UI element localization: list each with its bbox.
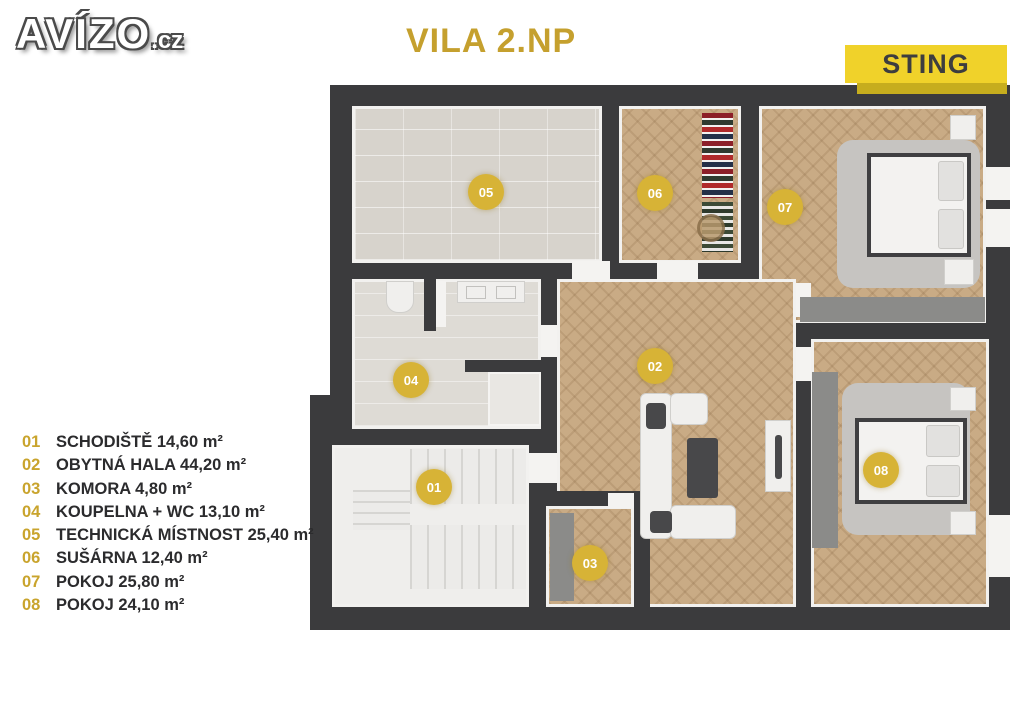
avizo-logo-suffix: .cz	[151, 27, 183, 54]
stair-corner-steps	[353, 490, 410, 530]
room-badge-03: 03	[572, 545, 608, 581]
legend-label: POKOJ 25,80 m²	[56, 573, 184, 592]
bed-room-07	[867, 153, 971, 257]
shelf-komora	[550, 513, 574, 601]
sink	[466, 286, 486, 299]
room-badge-01: 01	[416, 469, 452, 505]
door-hall-to-komora	[608, 493, 634, 508]
legend-label: KOMORA 4,80 m²	[56, 480, 192, 499]
legend-number: 06	[22, 549, 56, 568]
nightstand	[950, 387, 976, 411]
window-room-08	[989, 515, 1010, 577]
pillow	[938, 209, 964, 249]
door-hall-to-room-08	[796, 347, 811, 381]
dresser-room-07	[800, 297, 985, 322]
legend-number: 05	[22, 526, 56, 545]
coffee-table	[687, 438, 718, 498]
legend-row: 03 KOMORA 4,80 m²	[22, 480, 314, 503]
pillow	[926, 425, 960, 457]
wardrobe-room-08	[812, 372, 838, 548]
legend-number: 04	[22, 503, 56, 522]
door-bath-to-hall	[541, 325, 557, 357]
vanity-double-sink	[457, 281, 525, 303]
sideboard-decor	[775, 435, 782, 479]
nightstand	[944, 259, 974, 285]
floorplan: 01 02 03 04 05 06 07 08	[310, 85, 1010, 630]
legend-label: OBYTNÁ HALA 44,20 m²	[56, 456, 246, 475]
sofa-top-arm	[670, 393, 708, 425]
sting-badge-shadow-strip	[857, 83, 1007, 94]
legend-row: 06 SUŠÁRNA 12,40 m²	[22, 549, 314, 572]
legend-row: 01 SCHODIŠTĚ 14,60 m²	[22, 433, 314, 456]
legend-row: 08 POKOJ 24,10 m²	[22, 596, 314, 619]
legend-label: POKOJ 24,10 m²	[56, 596, 184, 615]
window-room-07-mullion	[986, 200, 1010, 209]
page-title: VILA 2.NP	[406, 22, 576, 61]
bath-partition	[424, 279, 436, 331]
legend-number: 08	[22, 596, 56, 615]
legend-number: 01	[22, 433, 56, 452]
shower	[488, 372, 541, 426]
clothes-rack	[702, 113, 733, 198]
legend-row: 05 TECHNICKÁ MÍSTNOST 25,40 m²	[22, 526, 314, 549]
legend-row: 07 POKOJ 25,80 m²	[22, 573, 314, 596]
sofa-cushion	[646, 403, 666, 429]
legend-number: 03	[22, 480, 56, 499]
room-badge-05: 05	[468, 174, 504, 210]
sink	[496, 286, 516, 299]
door-hall-north-a	[572, 261, 610, 280]
room-badge-04: 04	[393, 362, 429, 398]
nightstand	[950, 511, 976, 535]
sofa-bottom-arm	[670, 505, 736, 539]
avizo-logo: AVÍZO.cz	[16, 10, 183, 58]
door-hall-to-stairs	[529, 453, 557, 483]
room-legend: 01 SCHODIŠTĚ 14,60 m² 02 OBYTNÁ HALA 44,…	[22, 433, 314, 619]
avizo-logo-main: AVÍZO	[16, 10, 151, 57]
legend-label: SCHODIŠTĚ 14,60 m²	[56, 433, 223, 452]
legend-label: TECHNICKÁ MÍSTNOST 25,40 m²	[56, 526, 314, 545]
legend-label: KOUPELNA + WC 13,10 m²	[56, 503, 265, 522]
fan-decor	[697, 214, 725, 242]
legend-label: SUŠÁRNA 12,40 m²	[56, 549, 208, 568]
room-badge-02: 02	[637, 348, 673, 384]
legend-number: 02	[22, 456, 56, 475]
legend-number: 07	[22, 573, 56, 592]
bath-door-leaf	[436, 281, 446, 327]
pillow	[926, 465, 960, 497]
pillow	[938, 161, 964, 201]
sideboard-hall	[765, 420, 791, 492]
toilet	[386, 281, 414, 313]
stair-flight-lower	[410, 525, 526, 589]
shower-wall	[465, 360, 541, 372]
room-badge-06: 06	[637, 175, 673, 211]
sofa-cushion	[650, 511, 672, 533]
room-badge-08: 08	[863, 452, 899, 488]
room-badge-07: 07	[767, 189, 803, 225]
legend-row: 04 KOUPELNA + WC 13,10 m²	[22, 503, 314, 526]
nightstand	[950, 115, 976, 140]
sting-brand-badge: STING	[845, 45, 1007, 83]
door-hall-north-b	[657, 261, 698, 280]
legend-row: 02 OBYTNÁ HALA 44,20 m²	[22, 456, 314, 479]
